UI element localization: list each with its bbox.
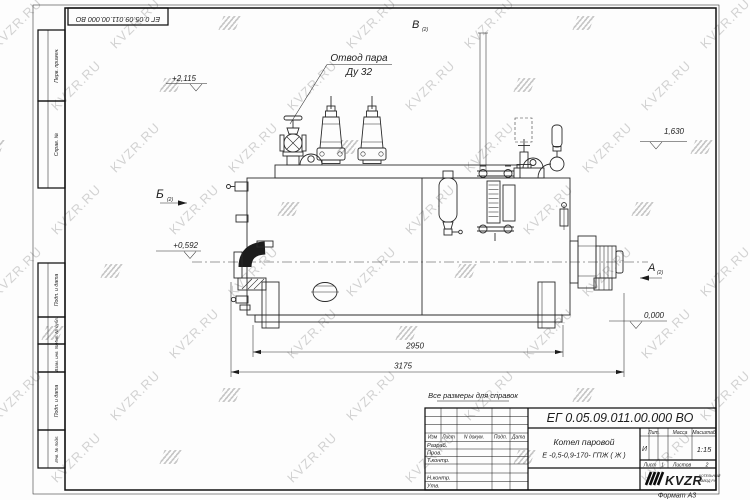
pressure-gauge-cock <box>515 118 532 168</box>
lit-label: Лит. <box>647 430 660 436</box>
dimension-3175-value: 3175 <box>394 362 412 371</box>
row-razrab: Разраб. <box>427 443 447 449</box>
view-v-subscript: (2) <box>422 27 428 33</box>
elevation-mark-top: +2,115 <box>166 74 207 91</box>
dimension-2950: 2950 <box>253 325 563 357</box>
drawing-sheet: KVZR.RUKVZR.RUKVZR.RUKVZR.RUKVZR.RUKVZR.… <box>0 0 750 500</box>
view-a-letter: А <box>647 262 655 274</box>
margin-vzam: Взам. инв. № <box>54 344 59 371</box>
dimension-2950-value: 2950 <box>405 342 424 351</box>
elevation-top-value: +2,115 <box>172 74 197 83</box>
steam-outlet-label-line1: Отвод пара <box>330 53 388 64</box>
row-utv: Утв. <box>426 484 440 490</box>
titleblock-doc-number: ЕГ 0.05.09.011.00.000 ВО <box>547 411 694 425</box>
elevation-mark-left: +0,592 <box>156 241 201 259</box>
row-prov: Пров. <box>427 451 442 457</box>
margin-fields: Перв. примен. Справ. № Подп. и дата Инв.… <box>38 30 65 468</box>
view-v-letter: В <box>412 19 419 31</box>
reference-note-text: Все размеры для справок <box>428 391 518 400</box>
reference-note: Все размеры для справок <box>428 391 518 401</box>
steam-outlet-valve <box>280 116 306 165</box>
product-name-line2: Е -0,5-0,9-170- ГПЖ ( Ж ) <box>542 451 625 460</box>
margin-invdubl: Инв. № дубл. <box>54 317 59 344</box>
sheet-label: Лист <box>643 462 657 468</box>
sheets-label: Листов <box>672 462 692 468</box>
col-data: Дата <box>511 435 525 441</box>
row-tkontr: Т.контр. <box>427 458 450 464</box>
view-mark-a: А (2) <box>640 262 663 281</box>
corner-stamp: ЕГ 0.05.09.011.00.000 ВО <box>68 8 168 25</box>
col-ndokum: N докум. <box>464 435 484 441</box>
company-logo: KVZR КОТЕЛЬНЫЙ ЗАВОД РУ <box>646 472 721 488</box>
steam-outlet-label-line2: Ду 32 <box>345 67 372 78</box>
elevation-mark-zero: 0,000 <box>609 311 667 329</box>
logo-text: KVZR <box>665 473 703 488</box>
logo-subtext-line2: ЗАВОД РУ <box>699 479 716 483</box>
lit-value: И <box>642 446 648 453</box>
col-podp: Подп. <box>494 435 507 441</box>
margin-podp1: Подп. и дата <box>54 274 60 307</box>
boiler-body <box>247 165 570 322</box>
support-legs <box>262 282 555 328</box>
steam-outlet-label: Отвод пара Ду 32 <box>290 53 392 124</box>
pressure-gauge <box>538 125 564 178</box>
safety-valve-1 <box>317 96 345 164</box>
margin-invpodl: Инв. № подл. <box>54 435 59 462</box>
burner <box>570 236 623 290</box>
view-b-letter: Б <box>156 187 164 201</box>
elevation-left-value: +0,592 <box>173 241 198 250</box>
view-a-subscript: (2) <box>657 270 663 276</box>
water-gauge <box>477 33 515 241</box>
engineering-drawing: ЕГ 0.05.09.011.00.000 ВО Перв. примен. С… <box>0 0 750 500</box>
row-nkontr: Н.контр. <box>427 476 451 482</box>
view-mark-v: В (2) <box>412 19 428 33</box>
thermometer-fitting <box>560 203 568 230</box>
elevation-right-value: 1,630 <box>664 127 685 136</box>
boiler-drawing: Отвод пара Ду 32 Б (2) В (2) А (2) <box>156 19 687 377</box>
safety-valve-2 <box>358 96 386 164</box>
scale-label: Масштаб <box>692 430 716 436</box>
lifting-lug-right <box>523 158 543 168</box>
manhole <box>311 283 339 302</box>
title-block: ЕГ 0.05.09.011.00.000 ВО Изм Лист N доку… <box>425 408 721 500</box>
margin-sprav: Справ. № <box>54 132 60 156</box>
mass-label: Масса <box>673 430 688 436</box>
view-mark-b: Б (2) <box>156 187 187 206</box>
left-fittings <box>227 182 249 222</box>
view-b-subscript: (2) <box>167 197 173 203</box>
corner-stamp-number: ЕГ 0.05.09.011.00.000 ВО <box>75 15 160 24</box>
scale-value: 1:15 <box>697 445 712 454</box>
margin-perv: Перв. примен. <box>54 48 60 82</box>
col-izm: Изм <box>428 435 438 441</box>
sheets-value: 2 <box>705 462 709 468</box>
col-list: Лист <box>441 435 455 441</box>
elevation-mark-right: 1,630 <box>640 127 687 149</box>
sheet-value: 1 <box>661 462 664 468</box>
elevation-zero-value: 0,000 <box>644 311 665 320</box>
product-name-line1: Котел паровой <box>554 437 615 447</box>
margin-podp2: Подп. и дата <box>54 385 60 418</box>
dimension-3175: 3175 <box>231 282 624 377</box>
logo-subtext-line1: КОТЕЛЬНЫЙ <box>699 474 721 478</box>
feed-elbow <box>231 241 273 310</box>
format-label: Формат А3 <box>658 493 696 500</box>
level-indicator <box>439 171 462 235</box>
